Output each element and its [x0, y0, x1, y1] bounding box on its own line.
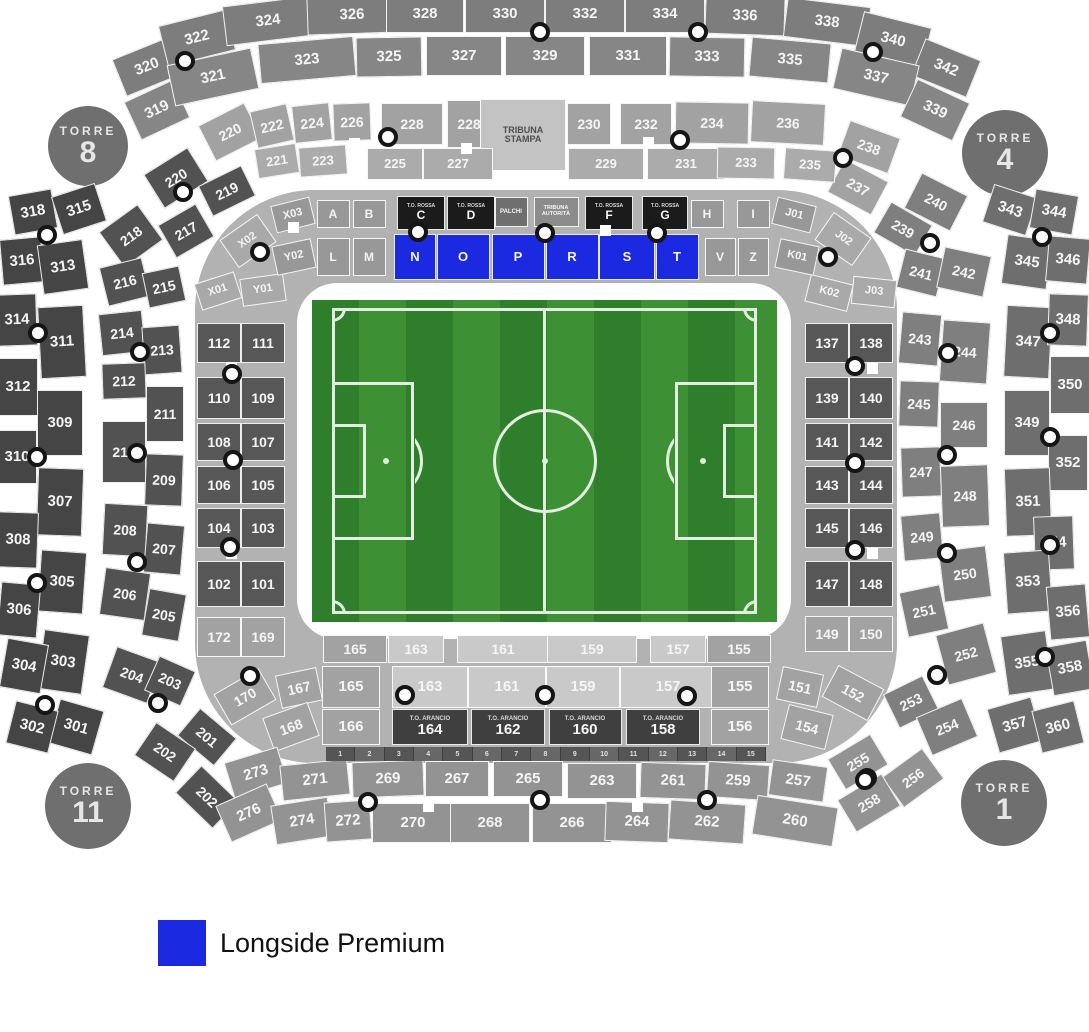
section-209[interactable]: 209	[144, 453, 184, 506]
section-150[interactable]: 150	[849, 616, 893, 652]
section-v[interactable]: V	[705, 238, 736, 276]
section-260[interactable]: 260	[751, 795, 838, 847]
section-205[interactable]: 205	[141, 588, 187, 642]
pitch-penalty-spot-right	[700, 458, 706, 464]
pitch-center-spot	[542, 458, 548, 464]
section-105[interactable]: 105	[241, 466, 285, 504]
section-g[interactable]: T.O. ROSSAG	[642, 196, 688, 230]
gate-marker	[938, 343, 958, 363]
stadium-map: 3203223243263283303323343363383403423193…	[0, 0, 1089, 900]
section-313[interactable]: 313	[37, 239, 90, 295]
section-r[interactable]: R	[546, 234, 599, 280]
section-b[interactable]: B	[353, 200, 386, 228]
section-157[interactable]: 157	[650, 635, 706, 663]
section-z[interactable]: Z	[738, 238, 769, 276]
section-251[interactable]: 251	[899, 584, 950, 638]
section-h[interactable]: H	[691, 200, 724, 228]
gate-marker	[530, 790, 550, 810]
vomitory-mark	[600, 225, 611, 236]
gate-marker	[175, 51, 195, 71]
pitch-goal-area-right	[723, 424, 757, 498]
gate-marker	[130, 342, 150, 362]
gate-marker	[220, 537, 240, 557]
row-number-12: 12	[649, 747, 678, 761]
gate-marker	[530, 22, 550, 42]
section-a[interactable]: A	[317, 200, 350, 228]
section-165[interactable]: 165	[322, 666, 380, 708]
row-number-2: 2	[355, 747, 384, 761]
section-102[interactable]: 102	[197, 561, 241, 607]
gate-marker	[647, 223, 667, 243]
section-215[interactable]: 215	[142, 265, 187, 308]
gate-marker	[670, 130, 690, 150]
gate-marker	[27, 573, 47, 593]
gate-marker	[937, 445, 957, 465]
section-137[interactable]: 137	[805, 323, 849, 363]
section-353[interactable]: 353	[1003, 549, 1053, 614]
section-147[interactable]: 147	[805, 561, 849, 607]
gate-marker	[127, 443, 147, 463]
section-143[interactable]: 143	[805, 466, 849, 504]
section-336[interactable]: 336	[704, 0, 785, 36]
section-328[interactable]: 328	[386, 0, 464, 33]
section-p[interactable]: P	[492, 234, 545, 280]
section-i[interactable]: I	[737, 200, 770, 228]
section-226[interactable]: 226	[332, 102, 371, 141]
gate-marker	[937, 543, 957, 563]
section-103[interactable]: 103	[241, 508, 285, 548]
section-271[interactable]: 271	[279, 759, 350, 802]
section-231[interactable]: 231	[647, 148, 725, 180]
section-106[interactable]: 106	[197, 466, 241, 504]
gate-marker	[35, 695, 55, 715]
section-211[interactable]: 211	[146, 386, 184, 442]
section-350[interactable]: 350	[1050, 356, 1089, 414]
gate-marker	[863, 42, 883, 62]
section-257[interactable]: 257	[768, 759, 828, 802]
gate-marker	[395, 685, 415, 705]
section-206[interactable]: 206	[99, 567, 151, 621]
legend-swatch-longside-premium	[158, 920, 206, 966]
section-315[interactable]: 315	[51, 183, 107, 235]
row-number-13: 13	[678, 747, 707, 761]
gate-marker	[688, 22, 708, 42]
section-m[interactable]: M	[353, 238, 386, 276]
section-327[interactable]: 327	[426, 36, 502, 76]
gate-marker	[222, 364, 242, 384]
section-158[interactable]: T.O. ARANCIO158	[626, 709, 700, 745]
gate-marker	[27, 447, 47, 467]
section-140[interactable]: 140	[849, 377, 893, 419]
section-236[interactable]: 236	[750, 100, 826, 146]
section-301[interactable]: 301	[48, 699, 105, 756]
section-311[interactable]: 311	[37, 305, 87, 379]
section-312[interactable]: 312	[0, 358, 38, 416]
section-261[interactable]: 261	[639, 762, 706, 800]
pitch-penalty-spot-left	[383, 458, 389, 464]
row-number-3: 3	[385, 747, 414, 761]
row-number-6: 6	[473, 747, 502, 761]
gate-marker	[845, 453, 865, 473]
section-329[interactable]: 329	[505, 36, 585, 76]
gate-marker	[1032, 227, 1052, 247]
section-j03[interactable]: J03	[851, 276, 898, 308]
section-d[interactable]: T.O. ROSSAD	[447, 196, 495, 230]
gate-marker	[1040, 535, 1060, 555]
section-243[interactable]: 243	[898, 311, 942, 366]
gate-marker	[378, 127, 398, 147]
section-225[interactable]: 225	[367, 148, 423, 180]
gate-marker	[1040, 323, 1060, 343]
gate-marker	[535, 685, 555, 705]
section-217[interactable]: 217	[157, 204, 214, 259]
torre-1: TORRE1	[961, 760, 1047, 846]
vomitory-mark	[288, 222, 299, 233]
section-323[interactable]: 323	[257, 36, 356, 84]
section-325[interactable]: 325	[356, 36, 423, 77]
section-219[interactable]: 219	[198, 165, 256, 217]
section-139[interactable]: 139	[805, 377, 849, 419]
gate-marker	[1035, 647, 1055, 667]
gate-marker	[358, 792, 378, 812]
row-number-10: 10	[590, 747, 619, 761]
section-148[interactable]: 148	[849, 561, 893, 607]
section-308[interactable]: 308	[0, 511, 39, 568]
gate-marker	[818, 247, 838, 267]
section-331[interactable]: 331	[589, 36, 667, 76]
section-161[interactable]: 161	[468, 666, 546, 708]
section-tribuna-autorità[interactable]: TRIBUNA AUTORITÀ	[534, 197, 579, 227]
section-245[interactable]: 245	[898, 380, 940, 427]
section-o[interactable]: O	[437, 234, 490, 280]
gate-marker	[855, 770, 875, 790]
torre-8: TORRE8	[48, 106, 128, 186]
gate-marker	[173, 182, 193, 202]
section-107[interactable]: 107	[241, 423, 285, 461]
section-111[interactable]: 111	[241, 323, 285, 363]
section-223[interactable]: 223	[298, 144, 348, 177]
section-172[interactable]: 172	[197, 617, 241, 657]
section-309[interactable]: 309	[37, 390, 83, 456]
section-palchi[interactable]: PALCHI	[495, 197, 528, 227]
section-356[interactable]: 356	[1046, 583, 1089, 640]
vomitory-mark	[349, 138, 360, 149]
gate-marker	[697, 790, 717, 810]
gate-marker	[833, 148, 853, 168]
row-number-5: 5	[443, 747, 472, 761]
section-156[interactable]: 156	[711, 709, 769, 745]
section-267[interactable]: 267	[425, 761, 489, 797]
section-160[interactable]: T.O. ARANCIO160	[549, 709, 622, 745]
gate-marker	[127, 552, 147, 572]
section-145[interactable]: 145	[805, 508, 849, 548]
vomitory-mark	[423, 801, 434, 812]
section-164[interactable]: T.O. ARANCIO164	[392, 709, 468, 745]
section-268[interactable]: 268	[450, 803, 530, 843]
section-246[interactable]: 246	[940, 402, 988, 448]
section-163[interactable]: 163	[388, 635, 444, 663]
row-number-9: 9	[561, 747, 590, 761]
section-304[interactable]: 304	[0, 638, 49, 695]
section-157[interactable]: 157	[620, 666, 716, 708]
gate-marker	[240, 666, 260, 686]
gate-marker	[223, 450, 243, 470]
row-number-7: 7	[502, 747, 531, 761]
section-248[interactable]: 248	[940, 464, 990, 528]
section-212[interactable]: 212	[101, 362, 146, 400]
row-number-8: 8	[531, 747, 560, 761]
section-141[interactable]: 141	[805, 423, 849, 461]
section-101[interactable]: 101	[241, 561, 285, 607]
row-number-11: 11	[619, 747, 648, 761]
section-358[interactable]: 358	[1045, 640, 1089, 697]
section-222[interactable]: 222	[249, 103, 295, 149]
section-227[interactable]: 227	[423, 148, 493, 180]
section-155[interactable]: 155	[707, 635, 771, 663]
section-109[interactable]: 109	[241, 377, 285, 419]
row-number-4: 4	[414, 747, 443, 761]
section-208[interactable]: 208	[102, 503, 149, 557]
torre-4: TORRE4	[962, 110, 1048, 196]
stadium-seating-map: 3203223243263283303323343363383403423193…	[0, 0, 1089, 1032]
vomitory-mark	[643, 137, 654, 148]
section-333[interactable]: 333	[669, 36, 746, 77]
vomitory-mark	[461, 143, 472, 154]
section-224[interactable]: 224	[291, 102, 333, 144]
gate-marker	[28, 323, 48, 343]
section-229[interactable]: 229	[568, 148, 644, 180]
gate-marker	[535, 223, 555, 243]
section-161[interactable]: 161	[457, 635, 549, 663]
gate-marker	[677, 686, 697, 706]
gate-marker	[927, 665, 947, 685]
torre-11: TORRE11	[45, 763, 131, 849]
row-number-1: 1	[326, 747, 355, 761]
gate-marker	[148, 693, 168, 713]
section-324[interactable]: 324	[222, 0, 314, 46]
section-263[interactable]: 263	[567, 763, 637, 799]
section-218[interactable]: 218	[99, 204, 164, 268]
vomitory-mark	[867, 548, 878, 559]
section-169[interactable]: 169	[241, 617, 285, 657]
section-165[interactable]: 165	[323, 635, 387, 663]
section-s[interactable]: S	[599, 234, 655, 280]
section-326[interactable]: 326	[306, 0, 397, 36]
section-335[interactable]: 335	[748, 37, 831, 84]
section-l[interactable]: L	[317, 238, 350, 276]
section-162[interactable]: T.O. ARANCIO162	[471, 709, 545, 745]
gate-marker	[1040, 427, 1060, 447]
section-233[interactable]: 233	[717, 146, 776, 179]
row-number-15: 15	[737, 747, 766, 761]
section-349[interactable]: 349	[1004, 390, 1050, 456]
vomitory-mark	[867, 363, 878, 374]
section-270[interactable]: 270	[372, 803, 454, 843]
row-number-14: 14	[707, 747, 736, 761]
section-235[interactable]: 235	[783, 147, 837, 183]
pitch-goal-area-left	[332, 424, 366, 498]
section-159[interactable]: 159	[546, 666, 620, 708]
section-112[interactable]: 112	[197, 323, 241, 363]
section-265[interactable]: 265	[493, 761, 563, 797]
gate-marker	[250, 242, 270, 262]
gate-marker	[845, 356, 865, 376]
legend: Longside Premium	[158, 920, 445, 966]
section-166[interactable]: 166	[322, 709, 380, 745]
section-242[interactable]: 242	[936, 246, 992, 297]
vomitory-mark	[632, 801, 643, 812]
section-159[interactable]: 159	[547, 635, 637, 663]
gate-marker	[37, 225, 57, 245]
section-207[interactable]: 207	[143, 522, 185, 575]
gate-marker	[920, 233, 940, 253]
section-230[interactable]: 230	[567, 103, 611, 145]
section-221[interactable]: 221	[254, 143, 300, 179]
section-332[interactable]: 332	[545, 0, 625, 33]
section-155[interactable]: 155	[711, 666, 769, 708]
football-pitch	[312, 300, 777, 622]
section-346[interactable]: 346	[1045, 235, 1089, 284]
section-247[interactable]: 247	[900, 446, 942, 497]
section-307[interactable]: 307	[36, 467, 84, 537]
section-360[interactable]: 360	[1031, 700, 1084, 753]
section-149[interactable]: 149	[805, 616, 849, 652]
gate-marker	[845, 540, 865, 560]
gate-marker	[408, 222, 428, 242]
legend-label: Longside Premium	[220, 928, 445, 959]
